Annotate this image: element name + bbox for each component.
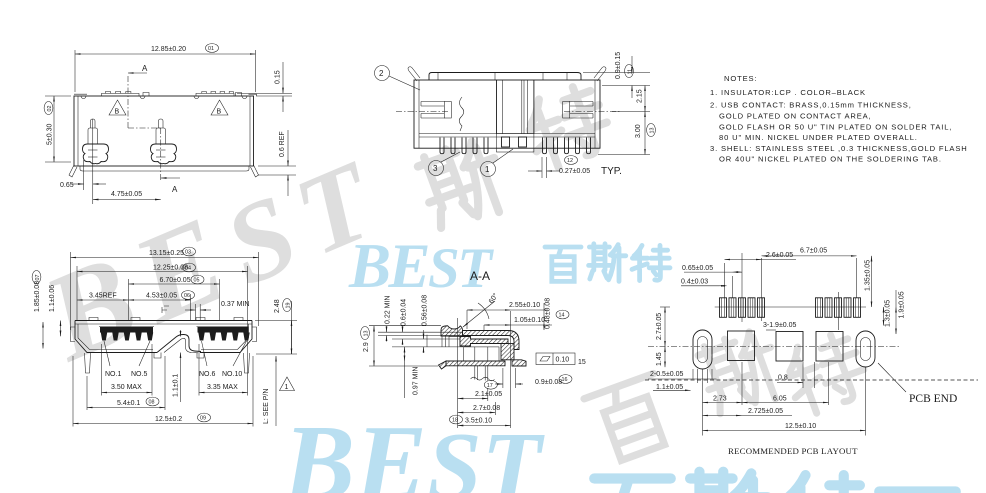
svg-text:OR 40U" NICKEL PLATED ON THE S: OR 40U" NICKEL PLATED ON THE SOLDERING T… [719,155,942,164]
svg-text:0.6±0.04: 0.6±0.04 [401,299,408,326]
svg-text:3: 3 [433,164,438,173]
svg-text:GOLD FLASH OR 50 U" TIN PLATED: GOLD FLASH OR 50 U" TIN PLATED ON SOLDER… [719,123,952,132]
svg-text:07: 07 [35,275,41,281]
svg-text:A: A [172,185,178,194]
svg-text:01: 01 [208,46,214,52]
svg-text:2.55±0.10: 2.55±0.10 [509,302,540,309]
svg-text:1.1±0.1: 1.1±0.1 [173,374,180,397]
svg-text:3. SHELL: STAINLESS STEEL ,0.3: 3. SHELL: STAINLESS STEEL ,0.3 THICKNESS… [710,144,968,153]
svg-text:16: 16 [562,377,568,383]
svg-text:11: 11 [628,69,634,75]
svg-text:B: B [217,109,222,116]
svg-text:3.45REF: 3.45REF [89,293,117,300]
svg-text:5±0.30: 5±0.30 [47,124,54,145]
svg-text:BEST: BEST [348,231,494,301]
svg-text:0.37 MIN: 0.37 MIN [221,301,249,308]
svg-text:2.725±0.05: 2.725±0.05 [748,408,783,415]
svg-text:3.00: 3.00 [635,124,642,138]
svg-text:09: 09 [200,416,206,422]
svg-text:1: 1 [285,384,289,391]
svg-text:2-0.5±0.05: 2-0.5±0.05 [650,371,684,378]
svg-text:5.4±0.1: 5.4±0.1 [117,400,140,407]
svg-text:2.7±0.05: 2.7±0.05 [656,313,663,340]
svg-text:15: 15 [578,359,586,366]
svg-text:1.35±0.05: 1.35±0.05 [865,260,872,291]
svg-text:1.1±0.05: 1.1±0.05 [656,384,683,391]
svg-text:1: 1 [485,165,490,174]
svg-text:0.27±0.05: 0.27±0.05 [559,168,590,175]
svg-text:14: 14 [559,313,565,319]
svg-text:0.4±0.03: 0.4±0.03 [681,279,708,286]
svg-text:PCB END: PCB END [909,393,957,405]
svg-text:A-A: A-A [470,269,490,283]
svg-text:1.3±0.05: 1.3±0.05 [885,300,892,327]
svg-text:2.9: 2.9 [363,342,370,352]
svg-text:0.22 MIN: 0.22 MIN [385,296,392,324]
svg-text:1. INSULATOR:LCP . COLOR–BLACK: 1. INSULATOR:LCP . COLOR–BLACK [710,88,866,97]
svg-text:2.48: 2.48 [274,299,281,313]
svg-text:L: SEE P/N: L: SEE P/N [263,389,270,424]
svg-text:2: 2 [379,69,384,78]
svg-text:2.15: 2.15 [637,89,644,103]
svg-text:0.65±0.05: 0.65±0.05 [682,265,713,272]
svg-text:1.45: 1.45 [656,352,663,366]
svg-text:RECOMMENDED PCB LAYOUT: RECOMMENDED PCB LAYOUT [728,446,858,456]
svg-text:12.5±0.2: 12.5±0.2 [155,416,182,423]
svg-text:3-1.9±0.05: 3-1.9±0.05 [763,322,797,329]
svg-text:NO.6: NO.6 [199,371,215,378]
svg-text:02: 02 [47,106,53,112]
svg-text:4.53±0.05: 4.53±0.05 [146,293,177,300]
svg-text:0.65: 0.65 [60,182,74,189]
svg-text:NO.5: NO.5 [131,371,147,378]
svg-text:12.85±0.20: 12.85±0.20 [151,46,186,53]
svg-text:05: 05 [194,278,200,284]
svg-text:13: 13 [650,128,656,134]
svg-text:2.6±0.05: 2.6±0.05 [766,252,793,259]
svg-text:NO.1: NO.1 [105,371,121,378]
svg-text:2.1±0.05: 2.1±0.05 [475,391,502,398]
svg-text:BEST: BEST [24,123,404,387]
svg-text:06: 06 [184,293,190,299]
svg-text:0.6 REF: 0.6 REF [279,131,286,157]
svg-text:0.8: 0.8 [778,375,788,382]
svg-text:2. USB CONTACT: BRASS,0.15mm T: 2. USB CONTACT: BRASS,0.15mm THICKNESS, [710,101,912,110]
svg-text:BEST: BEST [282,404,546,493]
svg-text:0.10: 0.10 [556,357,570,364]
svg-text:1.85±0.08: 1.85±0.08 [34,281,41,312]
svg-text:08: 08 [149,400,155,406]
svg-text:0.56±0.08: 0.56±0.08 [422,295,429,326]
svg-text:04: 04 [185,266,191,272]
svg-text:4.75±0.05: 4.75±0.05 [111,191,142,198]
svg-text:0.15: 0.15 [275,70,282,84]
svg-text:6.70±0.05: 6.70±0.05 [160,277,191,284]
svg-text:6.7±0.05: 6.7±0.05 [800,248,827,255]
svg-text:12.5±0.10: 12.5±0.10 [785,423,816,430]
svg-text:0.97 MIN: 0.97 MIN [413,367,420,395]
svg-text:6.05: 6.05 [773,396,787,403]
svg-text:03: 03 [185,250,191,256]
svg-text:1.9±0.05: 1.9±0.05 [899,291,906,318]
svg-text:2.7±0.08: 2.7±0.08 [473,405,500,412]
svg-text:3.5±0.10: 3.5±0.10 [465,418,492,425]
svg-text:0.9±0.08: 0.9±0.08 [535,379,562,386]
svg-text:NO.10: NO.10 [222,371,242,378]
svg-text:A: A [142,64,148,73]
svg-text:13: 13 [364,331,370,337]
svg-text:1.05±0.10: 1.05±0.10 [514,317,545,324]
svg-text:0.9±0.15: 0.9±0.15 [615,52,622,79]
svg-text:3.50 MAX: 3.50 MAX [111,384,142,391]
svg-text:12: 12 [567,158,573,164]
svg-text:GOLD PLATED ON CONTACT AREA,: GOLD PLATED ON CONTACT AREA, [719,112,872,121]
svg-text:17: 17 [487,383,493,389]
svg-text:13.15±0.25: 13.15±0.25 [149,250,184,257]
svg-text:80 U" MIN. NICKEL UNDER PLATED: 80 U" MIN. NICKEL UNDER PLATED OVERALL. [719,133,918,142]
svg-text:NOTES:: NOTES: [724,74,757,83]
svg-text:TYP.: TYP. [601,166,622,177]
svg-text:19: 19 [286,303,292,309]
svg-text:3.35 MAX: 3.35 MAX [207,384,238,391]
svg-text:2.73: 2.73 [713,396,727,403]
svg-text:0.48±0.08: 0.48±0.08 [545,298,552,329]
svg-text:1.1±0.06: 1.1±0.06 [49,285,56,312]
svg-text:B: B [115,109,120,116]
svg-text:18: 18 [452,418,458,424]
